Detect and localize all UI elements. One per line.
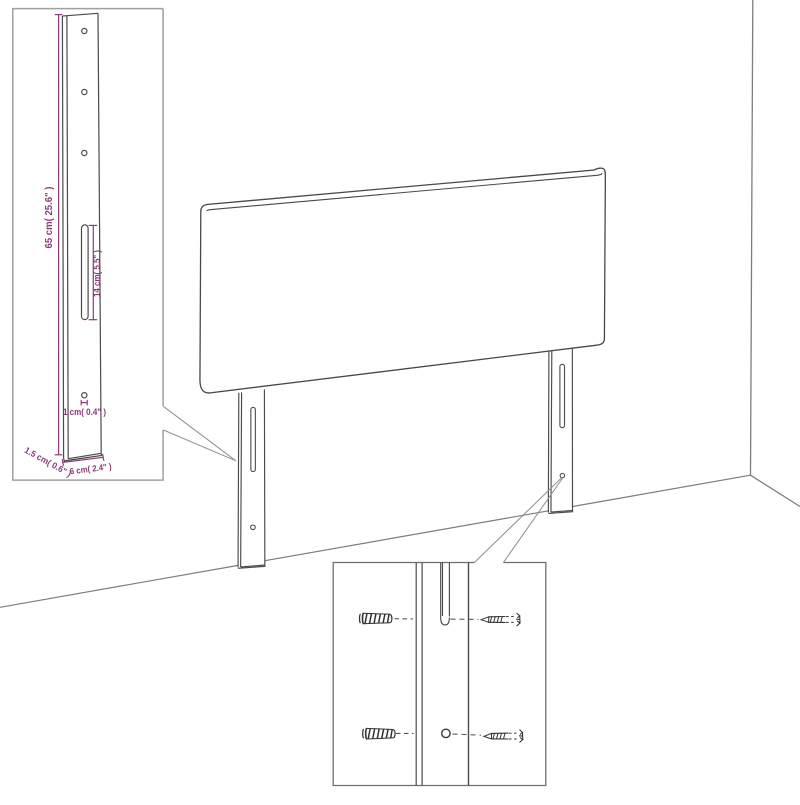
svg-text:14 cm( 5.5" ): 14 cm( 5.5" ) bbox=[92, 250, 102, 297]
svg-text:1 cm( 0.4" ): 1 cm( 0.4" ) bbox=[63, 407, 106, 417]
svg-text:65 cm( 25.6" ): 65 cm( 25.6" ) bbox=[44, 187, 55, 249]
